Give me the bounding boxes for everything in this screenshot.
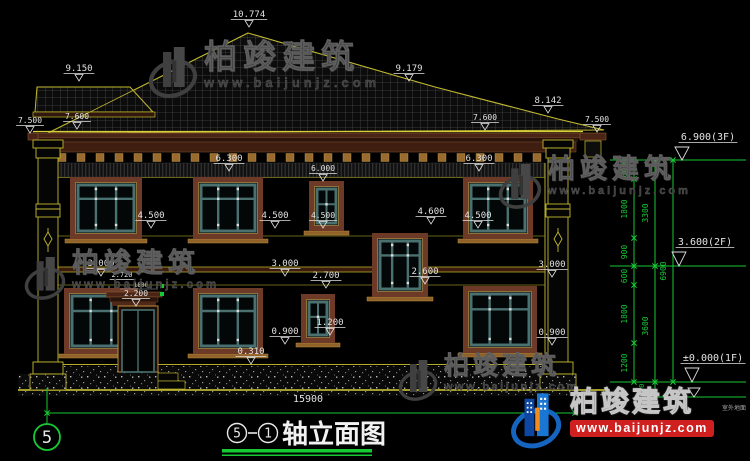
dim-label: 4.600 xyxy=(416,207,447,224)
svg-text:6.000: 6.000 xyxy=(311,164,335,173)
svg-text:0.900: 0.900 xyxy=(271,327,298,337)
svg-text:3.000: 3.000 xyxy=(87,259,114,269)
step xyxy=(158,373,178,381)
svg-text:0.900: 0.900 xyxy=(538,328,565,338)
window xyxy=(304,184,349,236)
svg-text:2.720: 2.720 xyxy=(111,271,132,279)
title-text: 轴立面图 xyxy=(282,419,386,449)
svg-text:2.700: 2.700 xyxy=(312,271,339,281)
window-sill xyxy=(304,231,349,235)
dim-label: 1800 xyxy=(134,282,149,289)
window-sill xyxy=(296,343,340,347)
svg-text:2.600: 2.600 xyxy=(411,267,438,277)
dim-label: 4.500 xyxy=(260,211,291,228)
svg-text:1800: 1800 xyxy=(134,282,149,289)
wing-fascia xyxy=(33,112,155,117)
window xyxy=(188,180,268,244)
dim-label: 3.000 xyxy=(270,259,301,276)
window-sill xyxy=(367,297,433,301)
window xyxy=(65,180,147,244)
cad-elevation-screenshot: 5 5 1 轴立面图 10.7749.1509.1798.1427.6007.6… xyxy=(0,0,750,461)
window-sill xyxy=(458,353,542,357)
svg-text:9.150: 9.150 xyxy=(65,64,92,74)
dim-label: 900 xyxy=(620,245,629,260)
svg-text:600: 600 xyxy=(620,163,629,178)
dim-label: 10.774 xyxy=(231,10,267,27)
title-underline xyxy=(222,449,372,453)
svg-text:7.500: 7.500 xyxy=(585,115,609,124)
dim-label: 2.720 xyxy=(110,271,135,280)
svg-text:1.200: 1.200 xyxy=(316,318,343,328)
svg-text:0.310: 0.310 xyxy=(237,347,264,357)
svg-text:±0.000(1F): ±0.000(1F) xyxy=(683,353,743,364)
axis-bubble-number: 5 xyxy=(42,428,52,448)
dim-label: 1800 xyxy=(620,304,629,323)
svg-text:600: 600 xyxy=(620,269,629,284)
window-sill xyxy=(458,239,538,243)
svg-text:6900: 6900 xyxy=(659,261,668,280)
dim-label: 8.142 xyxy=(533,96,564,113)
cad-marker xyxy=(160,284,164,288)
roof xyxy=(33,33,604,133)
window-sill xyxy=(65,239,147,243)
drawing-title: 5 1 轴立面图 xyxy=(222,419,386,456)
svg-text:3.600(2F): 3.600(2F) xyxy=(678,237,732,248)
dim-label: 600 xyxy=(620,269,629,284)
svg-text:2.200: 2.200 xyxy=(124,289,148,298)
brand-logo: 柏竣建筑 www.baijunjz.com xyxy=(510,388,714,454)
svg-text:室外地面: 室外地面 xyxy=(722,404,746,412)
brand-logo-icon xyxy=(510,388,564,454)
brand-name-text: 柏竣建筑 xyxy=(570,388,714,416)
svg-text:9.179: 9.179 xyxy=(395,64,422,74)
svg-text:4.600: 4.600 xyxy=(417,207,444,217)
svg-text:4.500: 4.500 xyxy=(464,211,491,221)
svg-text:7.600: 7.600 xyxy=(473,113,497,122)
brand-url-badge: www.baijunjz.com xyxy=(570,420,714,437)
svg-text:4.500: 4.500 xyxy=(311,211,335,220)
main-hip-roof xyxy=(48,33,604,133)
svg-text:6.300: 6.300 xyxy=(465,154,492,164)
title-ref-number: 1 xyxy=(264,427,272,442)
svg-text:15900: 15900 xyxy=(293,394,323,405)
svg-text:1800: 1800 xyxy=(620,199,629,218)
dim-label: 0.310 xyxy=(236,347,267,364)
svg-text:6.900(3F): 6.900(3F) xyxy=(681,132,735,143)
dim-label: 3.600(2F) xyxy=(676,237,735,248)
title-axis-number: 5 xyxy=(233,427,241,442)
dim-label: 室外地面 xyxy=(722,404,746,412)
svg-text:3300: 3300 xyxy=(641,203,650,222)
svg-text:4.500: 4.500 xyxy=(261,211,288,221)
dim-label: 2.700 xyxy=(311,271,342,288)
dim-label: 6900 xyxy=(659,261,668,280)
dim-label: 6.900(3F) xyxy=(679,132,738,143)
right-eave-return xyxy=(580,133,606,140)
svg-text:900: 900 xyxy=(620,245,629,260)
dim-label: 3300 xyxy=(641,203,650,222)
dim-label: 15900 xyxy=(293,394,323,405)
svg-text:1800: 1800 xyxy=(620,304,629,323)
svg-text:7.600: 7.600 xyxy=(65,112,89,121)
svg-text:1200: 1200 xyxy=(620,353,629,372)
dim-label: 1200 xyxy=(620,353,629,372)
svg-text:7.500: 7.500 xyxy=(18,116,42,125)
dim-label: 6.000 xyxy=(309,164,337,181)
svg-text:3.000: 3.000 xyxy=(271,259,298,269)
dim-label: 7.500 xyxy=(16,116,44,133)
axis-bubble: 5 xyxy=(34,424,60,450)
dim-label: 0.900 xyxy=(270,327,301,344)
window-sill xyxy=(188,239,268,243)
dim-label: ±0.000(1F) xyxy=(681,353,746,364)
dim-label: 1800 xyxy=(620,199,629,218)
cad-marker xyxy=(160,292,164,296)
dim-label: 9.150 xyxy=(64,64,95,81)
window xyxy=(458,289,542,358)
left-eave-return xyxy=(28,133,38,140)
svg-text:6.300: 6.300 xyxy=(215,154,242,164)
dim-label: 600 xyxy=(620,163,629,178)
svg-text:8.142: 8.142 xyxy=(534,96,561,106)
dim-label: 3600 xyxy=(641,316,650,335)
svg-text:3600: 3600 xyxy=(641,316,650,335)
frieze-band xyxy=(56,163,545,177)
step xyxy=(158,381,185,389)
svg-text:4.500: 4.500 xyxy=(137,211,164,221)
svg-text:10.774: 10.774 xyxy=(233,10,266,20)
svg-text:3.000: 3.000 xyxy=(538,260,565,270)
